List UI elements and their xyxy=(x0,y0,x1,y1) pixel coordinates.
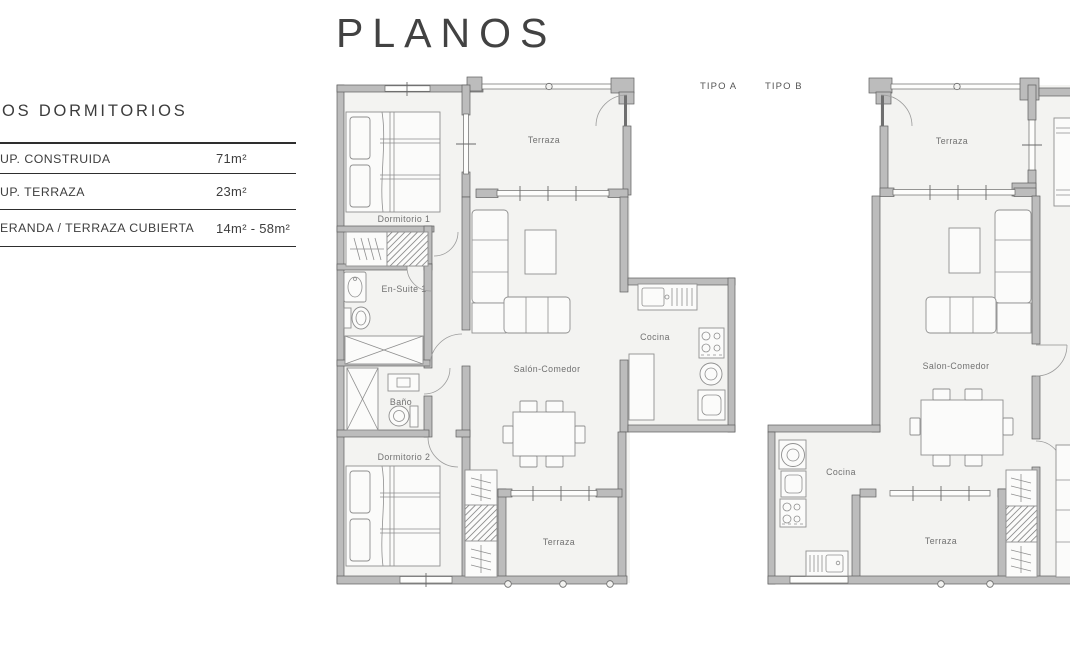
cut-off-bed-symbol xyxy=(1054,118,1070,206)
info-panel-heading: OS DORMITORIOS xyxy=(2,102,188,121)
info-row-terrace-area: UP. TERRAZA 23m² xyxy=(0,173,296,209)
info-row-label: UP. TERRAZA xyxy=(0,185,216,199)
washing-machine-symbol xyxy=(779,440,806,469)
bathroom-basin-symbol xyxy=(388,374,419,391)
kitchen-counter-symbol xyxy=(629,354,654,420)
floor-plan-b: Terraza Salon-Comedor Cocina Terraza xyxy=(765,72,1070,594)
kitchen-sink-symbol xyxy=(638,284,697,310)
page-title: PLANOS xyxy=(336,10,556,57)
oven-symbol xyxy=(698,390,725,420)
room-label-dormitorio-1: Dormitorio 1 xyxy=(378,214,431,224)
brochure-page: PLANOS OS DORMITORIOS UP. CONSTRUIDA 71m… xyxy=(0,0,1070,650)
info-table: UP. CONSTRUIDA 71m² UP. TERRAZA 23m² ERA… xyxy=(0,142,296,247)
room-label-bano: Baño xyxy=(390,397,412,407)
info-row-veranda-area: ERANDA / TERRAZA CUBIERTA 14m² - 58m² xyxy=(0,209,296,247)
room-label-terraza-top: Terraza xyxy=(936,136,968,146)
info-row-label: ERANDA / TERRAZA CUBIERTA xyxy=(0,221,216,235)
room-label-terraza-bottom: Terraza xyxy=(925,536,957,546)
dining-table-symbol xyxy=(910,389,1013,466)
closet-symbol xyxy=(346,232,428,266)
info-row-value: 71m² xyxy=(216,151,296,166)
shower-symbol xyxy=(347,368,378,430)
room-label-cocina: Cocina xyxy=(826,467,856,477)
railing-post-icon xyxy=(560,581,567,588)
info-row-constructed-area: UP. CONSTRUIDA 71m² xyxy=(0,142,296,173)
washing-machine-symbol xyxy=(700,363,722,385)
room-label-terraza-bottom: Terraza xyxy=(543,537,575,547)
kitchen-sink-symbol xyxy=(806,551,848,576)
room-label-terraza-top: Terraza xyxy=(528,135,560,145)
oven-symbol xyxy=(781,471,806,497)
toilet-symbol xyxy=(344,307,370,329)
room-label-salon-comedor: Salon-Comedor xyxy=(923,361,990,371)
stove-symbol xyxy=(780,499,806,527)
info-row-label: UP. CONSTRUIDA xyxy=(0,152,216,166)
bathtub-symbol xyxy=(345,336,423,364)
room-label-cocina: Cocina xyxy=(640,332,670,342)
railing-post-icon xyxy=(607,581,614,588)
room-label-salon-comedor: Salón-Comedor xyxy=(514,364,581,374)
railing-post-icon xyxy=(546,83,552,89)
railing-post-icon xyxy=(954,83,960,89)
info-row-value: 23m² xyxy=(216,184,296,199)
room-label-dormitorio-2: Dormitorio 2 xyxy=(378,452,431,462)
washbasin-symbol xyxy=(344,272,366,302)
railing-post-icon xyxy=(987,581,994,588)
coffee-table-symbol xyxy=(949,228,980,273)
railing-post-icon xyxy=(938,581,945,588)
stove-symbol xyxy=(699,328,724,358)
toilet-symbol xyxy=(389,406,418,427)
wardrobe-symbol xyxy=(465,470,497,577)
coffee-table-symbol xyxy=(525,230,556,274)
railing-post-icon xyxy=(505,581,512,588)
wardrobe-symbol xyxy=(1006,470,1037,577)
floor-plan-a: Terraza Dormitorio 1 En-Suite 1 Baño Dor… xyxy=(330,72,745,594)
cut-off-wardrobe-symbol xyxy=(1056,445,1070,577)
info-row-value: 14m² - 58m² xyxy=(216,221,296,236)
room-label-en-suite-1: En-Suite 1 xyxy=(381,284,426,294)
